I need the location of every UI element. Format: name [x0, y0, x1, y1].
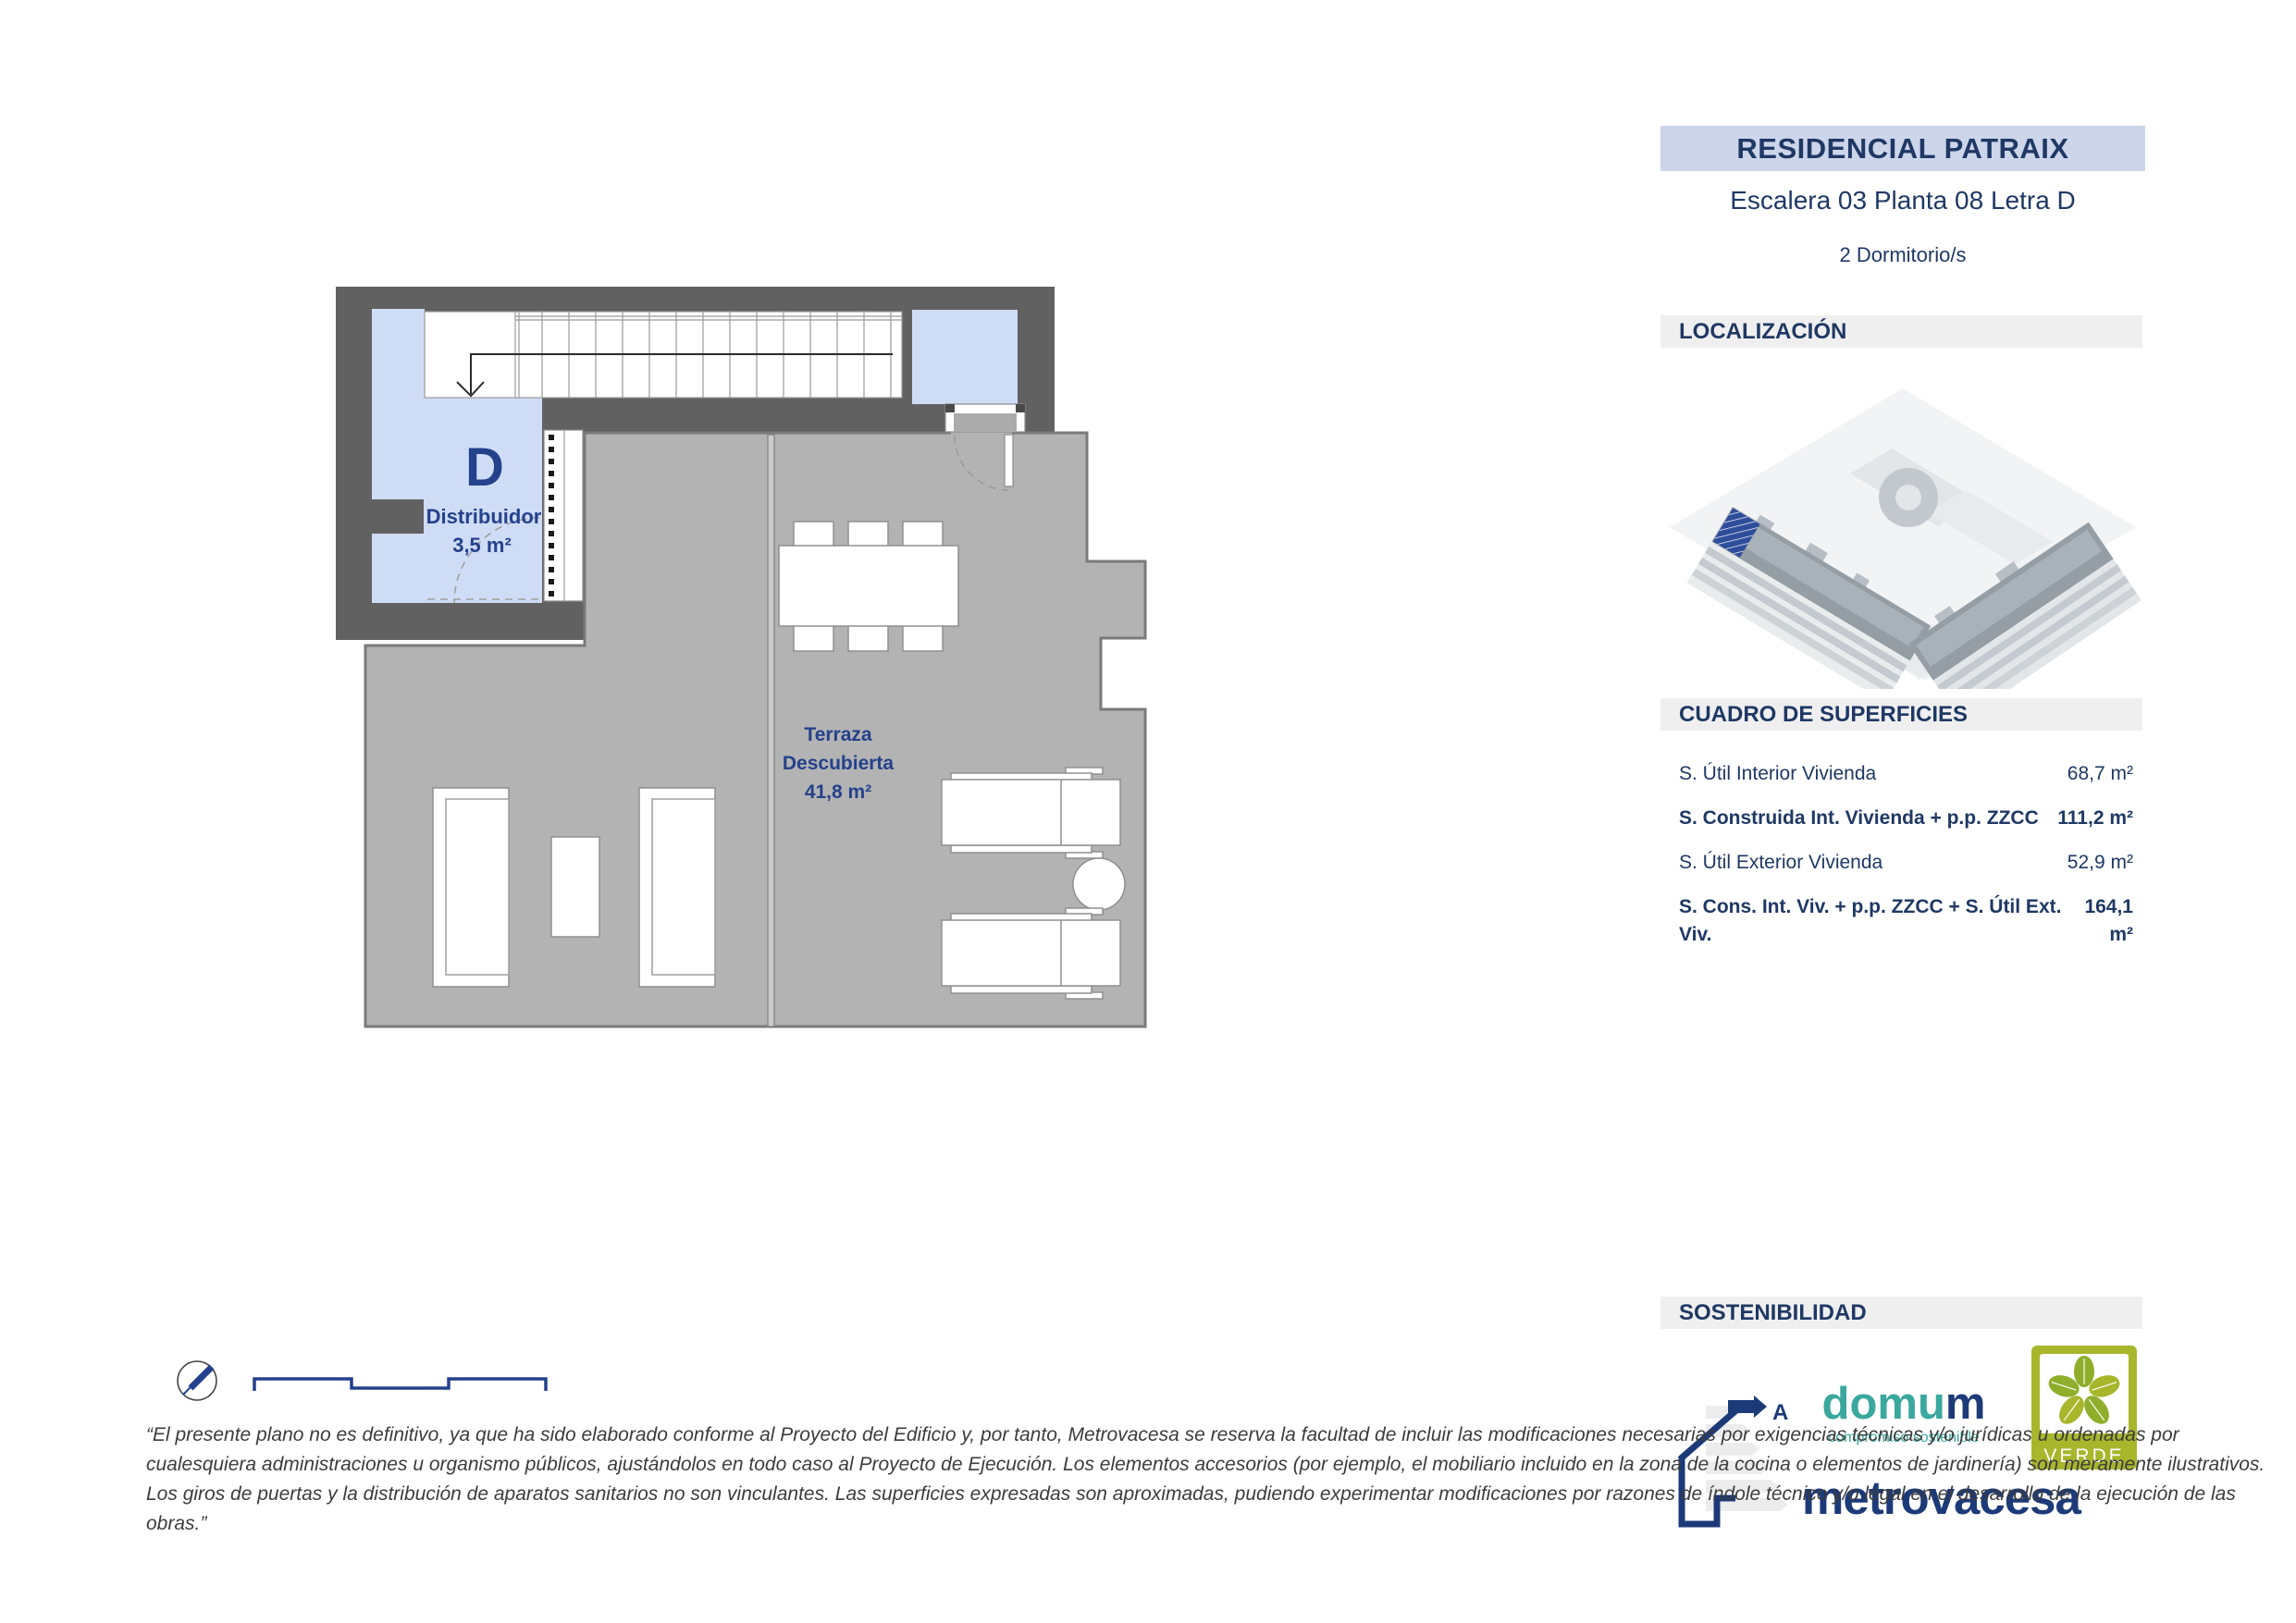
room-distribuidor: [425, 398, 542, 603]
distribuidor-area-label: 3,5 m²: [452, 534, 512, 557]
disclaimer-line: obras.”: [146, 1509, 1626, 1539]
page-title: RESIDENCIAL PATRAIX: [1660, 126, 2145, 171]
scale-bar: [254, 1379, 546, 1391]
section-localizacion: LOCALIZACIÓN: [1660, 315, 2142, 348]
surface-row: S. Cons. Int. Viv. + p.p. ZZCC + S. Útil…: [1679, 893, 2133, 921]
surface-value: 68,7 m²: [2068, 760, 2133, 788]
surface-label: S. Útil Exterior Vivienda: [1679, 849, 1882, 877]
unit-subtitle: Escalera 03 Planta 08 Letra D: [1660, 185, 2145, 216]
dining-set: [779, 522, 958, 651]
room-landing: [372, 309, 425, 603]
surface-label: S. Construida Int. Vivienda + p.p. ZZCC: [1679, 805, 2039, 832]
domum-logo-teal: domu: [1822, 1379, 1945, 1429]
sun-lounger: [942, 768, 1120, 858]
surface-value: 164,1 m²: [2062, 893, 2133, 921]
disclaimer-line: “El presente plano no es definitivo, ya …: [146, 1420, 1626, 1450]
surface-value: 52,9 m²: [2068, 849, 2133, 877]
window-strip: [544, 430, 583, 601]
surface-row: S. Útil Exterior Vivienda 52,9 m²: [1679, 849, 2133, 877]
disclaimer-text: “El presente plano no es definitivo, ya …: [146, 1420, 1626, 1539]
unit-letter-label: D: [465, 437, 504, 498]
section-superficies: CUADRO DE SUPERFICIES: [1660, 698, 2142, 731]
floor-plan-sheet: { "header": { "title": "RESIDENCIAL PATR…: [0, 0, 2296, 1623]
disclaimer-line: Los giros de puertas y la distribución d…: [146, 1480, 1626, 1509]
staircase: [425, 312, 902, 398]
bedrooms-count: 2 Dormitorio/s: [1660, 242, 2145, 268]
verde-badge: VERDE: [2031, 1346, 2137, 1469]
dining-table: [779, 546, 958, 626]
energy-rating-letter: A: [1772, 1400, 1788, 1425]
terraza-label-line1: Terraza: [804, 724, 871, 745]
terraza-area-label: 41,8 m²: [805, 781, 871, 803]
terrace-divider: [768, 435, 774, 1027]
surface-label: S. Cons. Int. Viv. + p.p. ZZCC + S. Útil…: [1679, 893, 2062, 921]
lounger-left: [639, 788, 715, 987]
location-render: [1660, 361, 2145, 689]
domum-logo-navy: m: [1945, 1379, 1986, 1429]
round-side-table: [1073, 858, 1125, 910]
small-table: [551, 837, 599, 937]
elevator-shaft: [912, 310, 1018, 404]
surface-label: S. Útil Interior Vivienda: [1679, 760, 1876, 788]
disclaimer-line: cualesquiera administraciones u organism…: [146, 1450, 1626, 1480]
surface-row: S. Útil Interior Vivienda 68,7 m²: [1679, 760, 2133, 788]
surface-row: S. Construida Int. Vivienda + p.p. ZZCC …: [1679, 805, 2133, 832]
terraza-label-line2: Descubierta: [783, 753, 895, 774]
north-compass-icon: [178, 1361, 216, 1400]
distribuidor-label: Distribuidor: [426, 505, 542, 528]
sun-lounger: [942, 908, 1120, 999]
section-sostenibilidad: SOSTENIBILIDAD: [1660, 1297, 2142, 1329]
lounger-left: [433, 788, 509, 987]
surface-value: 111,2 m²: [2057, 805, 2133, 832]
